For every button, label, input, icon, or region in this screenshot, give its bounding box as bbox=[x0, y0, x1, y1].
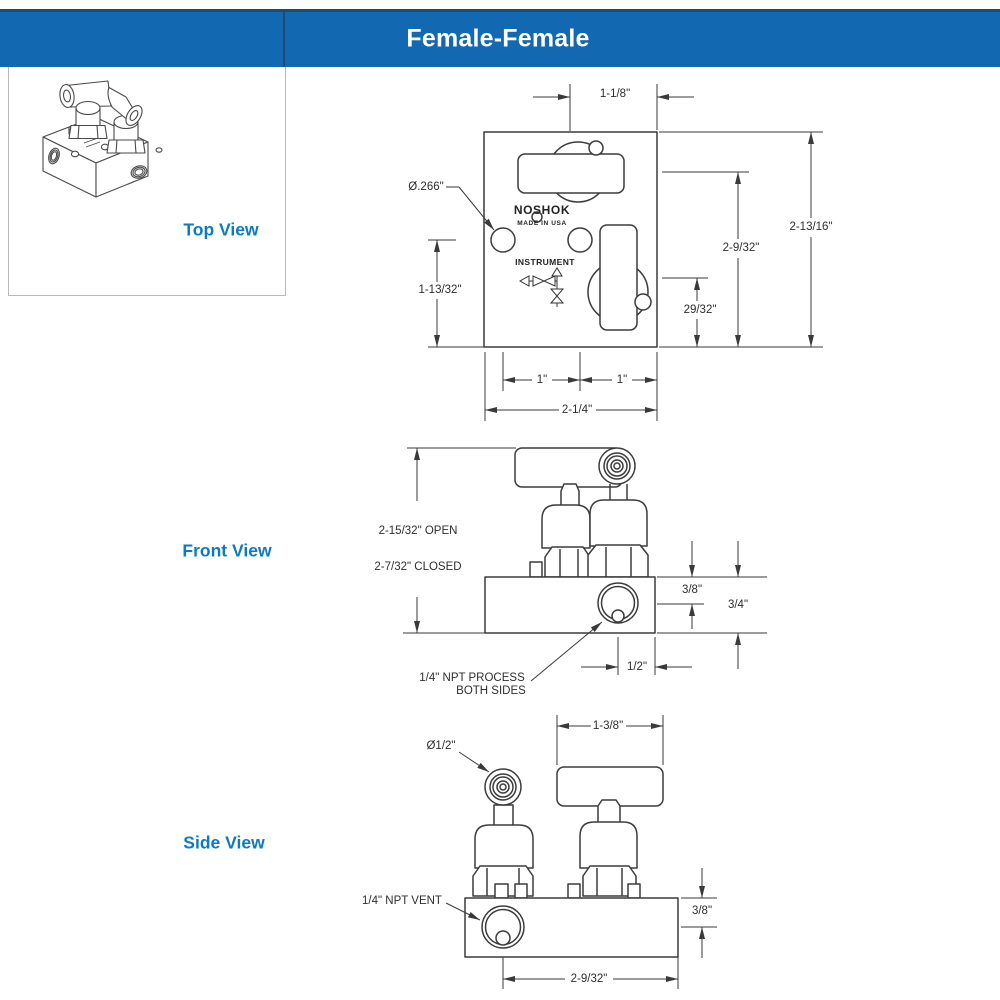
dim-outlet-height: 29/32" bbox=[682, 304, 719, 316]
dim-right-spacing: 1" bbox=[617, 374, 627, 386]
note-process-line2: BOTH SIDES bbox=[456, 685, 526, 697]
dim-port-offset: 1/2" bbox=[625, 661, 649, 673]
label-top-view: Top View bbox=[183, 220, 258, 241]
dim-open-closed: 2-15/32" OPEN 2-7/32" CLOSED bbox=[372, 501, 463, 597]
dim-handle-dia: Ø1/2" bbox=[426, 740, 455, 752]
dim-handle-width: 1-3/8" bbox=[591, 720, 625, 732]
dim-ports-height: 1-13/32" bbox=[416, 284, 463, 296]
side-view-drawing bbox=[446, 715, 717, 989]
dim-vent-offset: 2-9/32" bbox=[569, 973, 610, 985]
dim-top-to-port: 3/8" bbox=[682, 584, 702, 596]
dim-left-spacing: 1" bbox=[537, 374, 547, 386]
dim-handle-height: 2-9/32" bbox=[721, 242, 762, 254]
dim-hole-dia: Ø.266" bbox=[408, 181, 443, 193]
instrument-label: INSTRUMENT bbox=[515, 256, 575, 268]
drawing-sheet: Female-Female bbox=[0, 0, 1000, 1000]
dim-height-open: 2-15/32" OPEN bbox=[374, 525, 461, 537]
orthographic-drawings bbox=[0, 0, 1000, 1000]
dim-height-closed: 2-7/32" CLOSED bbox=[374, 561, 461, 573]
dim-overall-width: 2-1/4" bbox=[560, 404, 594, 416]
dim-center-to-edge: 1-1/8" bbox=[600, 88, 630, 100]
label-side-view: Side View bbox=[183, 833, 264, 854]
dim-body-height: 3/4" bbox=[728, 599, 748, 611]
note-vent: 1/4" NPT VENT bbox=[362, 895, 442, 907]
noshok-logo: NOSHOK bbox=[514, 204, 570, 216]
dim-top-to-vent: 3/8" bbox=[692, 905, 712, 917]
dim-overall-depth: 2-13/16" bbox=[787, 221, 834, 233]
label-front-view: Front View bbox=[182, 541, 271, 562]
note-process-line1: 1/4" NPT PROCESS bbox=[419, 672, 525, 684]
made-in-usa-text: MADE IN USA bbox=[517, 218, 567, 230]
top-view-drawing bbox=[428, 84, 823, 421]
